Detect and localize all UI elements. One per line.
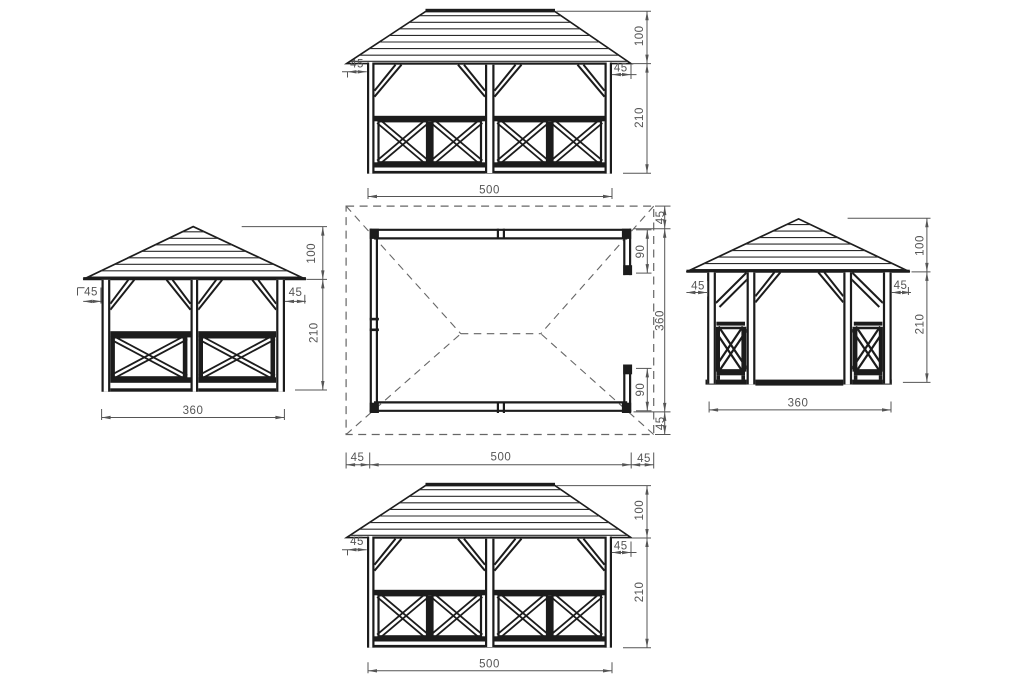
svg-text:45: 45 [350, 58, 364, 70]
svg-text:45: 45 [637, 453, 651, 465]
svg-text:45: 45 [614, 540, 628, 552]
svg-text:100: 100 [634, 25, 646, 46]
svg-text:90: 90 [635, 245, 647, 259]
svg-text:210: 210 [634, 582, 646, 603]
svg-text:45: 45 [289, 287, 303, 299]
svg-text:360: 360 [788, 397, 809, 409]
svg-text:90: 90 [635, 383, 647, 397]
svg-text:45: 45 [614, 62, 628, 74]
svg-text:500: 500 [479, 659, 500, 671]
svg-text:500: 500 [491, 452, 512, 464]
svg-text:210: 210 [634, 107, 646, 128]
svg-text:500: 500 [479, 184, 500, 196]
svg-text:45: 45 [351, 452, 365, 464]
svg-text:100: 100 [915, 235, 927, 256]
svg-text:210: 210 [915, 314, 927, 335]
svg-text:360: 360 [655, 310, 667, 331]
svg-text:100: 100 [306, 243, 318, 264]
svg-text:210: 210 [309, 322, 321, 343]
svg-text:45: 45 [894, 280, 908, 292]
svg-text:45: 45 [691, 281, 705, 293]
svg-text:45: 45 [350, 536, 364, 548]
svg-text:45: 45 [655, 211, 667, 225]
svg-text:360: 360 [183, 405, 204, 417]
svg-text:45: 45 [84, 287, 98, 299]
svg-text:100: 100 [634, 500, 646, 521]
svg-text:45: 45 [655, 416, 667, 430]
